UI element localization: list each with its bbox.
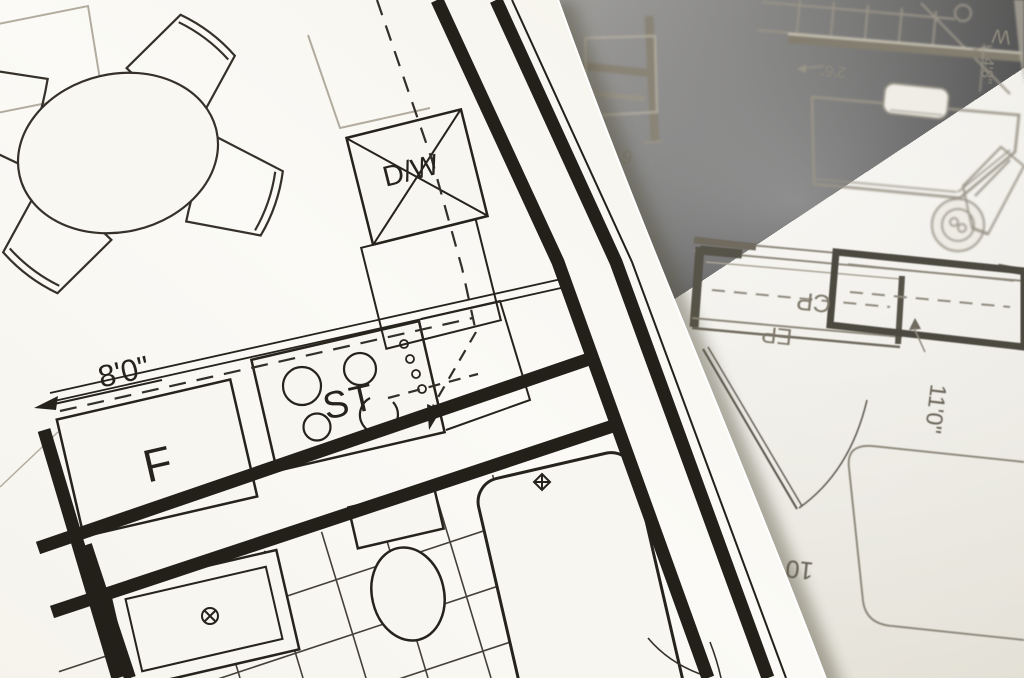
dim-small-a: 2'6" xyxy=(818,61,846,81)
blueprint-photo: W F 6'0" 2'6" 4'8" CP EP 11'0" 10'0" xyxy=(0,0,1024,678)
lamp xyxy=(932,199,984,251)
label-closet-cp: CP xyxy=(795,286,832,317)
pillow xyxy=(883,83,950,120)
blueprint-scene: W F 6'0" 2'6" 4'8" CP EP 11'0" 10'0" xyxy=(0,0,1024,678)
label-washer: W xyxy=(991,24,1012,48)
label-closet-ep: EP xyxy=(760,321,793,350)
wall xyxy=(649,16,655,142)
dim-small-b: 4'8" xyxy=(977,56,997,84)
